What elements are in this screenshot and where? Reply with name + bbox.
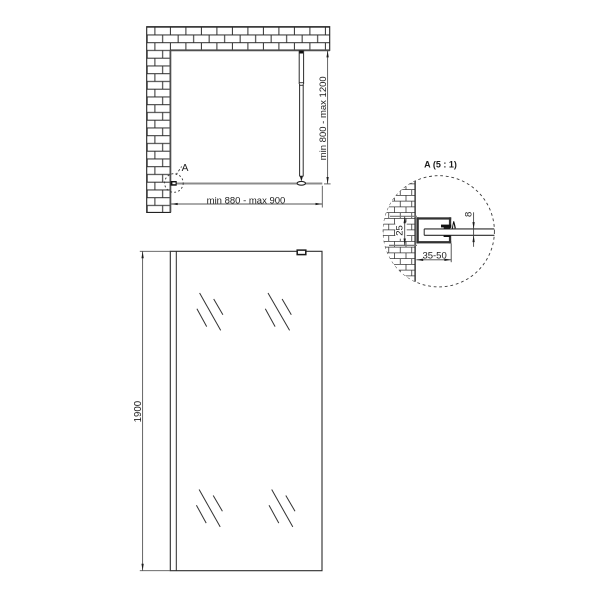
svg-text:35-50: 35-50	[422, 251, 446, 262]
svg-text:8: 8	[463, 212, 474, 217]
svg-text:min 800 - max 1200: min 800 - max 1200	[318, 76, 329, 160]
svg-text:A: A	[182, 163, 189, 174]
svg-text:25: 25	[395, 225, 406, 236]
svg-text:min 880 - max 900: min 880 - max 900	[207, 195, 286, 206]
svg-text:1900: 1900	[133, 400, 144, 422]
svg-text:A (5 : 1): A (5 : 1)	[424, 160, 457, 170]
